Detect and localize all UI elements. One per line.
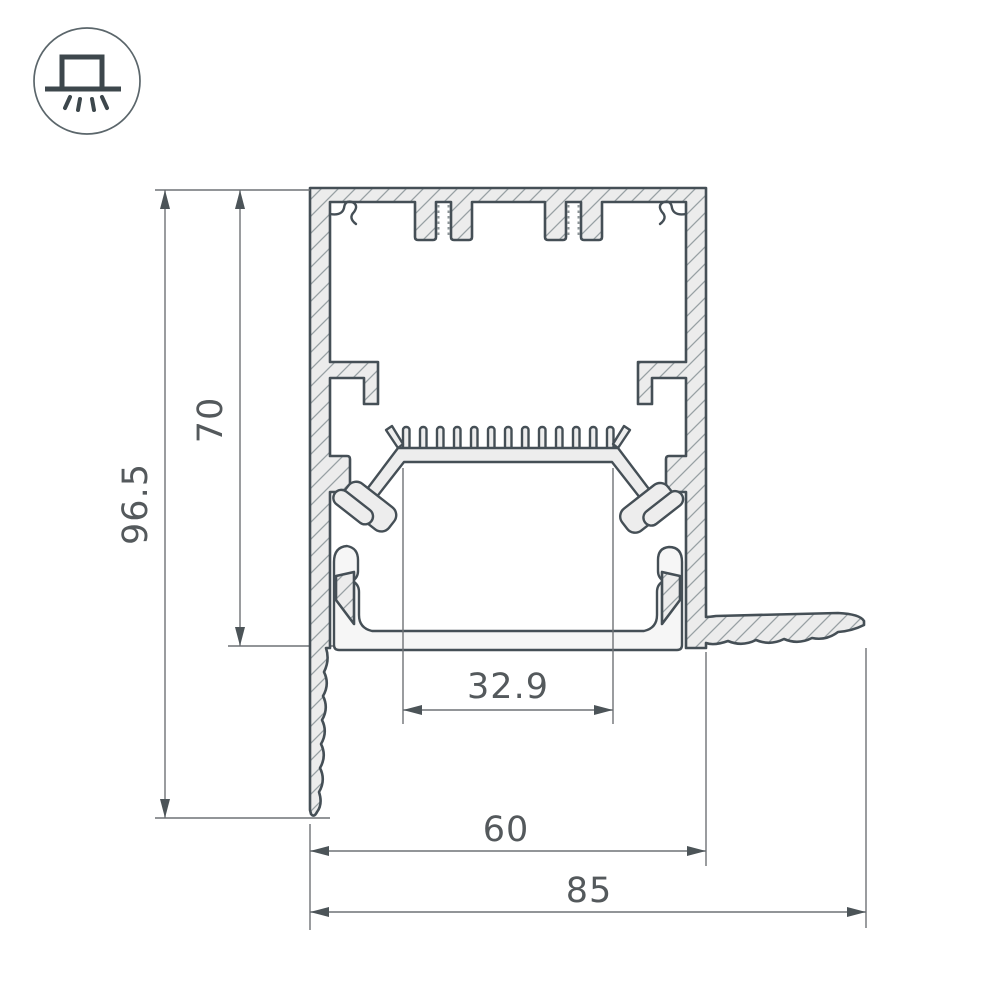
dimension-label-overall-width: 85 bbox=[566, 871, 613, 911]
heatsink-plate bbox=[352, 448, 664, 517]
icon-light-rays bbox=[65, 97, 107, 110]
corner-curl-right bbox=[660, 202, 686, 224]
profile-body-section bbox=[310, 188, 864, 816]
dimension-annotations: 96.5 70 32.9 60 bbox=[116, 190, 866, 930]
dimension-label-inner-height: 70 bbox=[191, 397, 231, 444]
surface-mounted-luminaire-icon bbox=[34, 28, 140, 134]
dimension-inner-height: 70 bbox=[191, 190, 245, 646]
corner-curl-left bbox=[330, 202, 356, 224]
dimension-inner-width: 32.9 bbox=[403, 667, 613, 715]
diffuser-tray bbox=[334, 546, 682, 650]
heatsink-end-fin-left bbox=[386, 426, 403, 448]
profile-drawing-canvas: 96.5 70 32.9 60 bbox=[0, 0, 1000, 1000]
heatsink-end-fin-right bbox=[613, 426, 630, 448]
drawing-page: 96.5 70 32.9 60 bbox=[0, 0, 1000, 1000]
heatsink-assembly bbox=[330, 426, 686, 540]
dimension-label-inner-width: 32.9 bbox=[467, 667, 549, 707]
dimension-label-body-width: 60 bbox=[483, 810, 530, 850]
dimension-label-overall-height: 96.5 bbox=[116, 463, 156, 545]
dimension-body-width: 60 bbox=[310, 810, 706, 856]
dimension-overall-height: 96.5 bbox=[116, 190, 170, 818]
icon-circle bbox=[34, 28, 140, 134]
dimension-overall-width: 85 bbox=[310, 871, 866, 917]
icon-luminaire-body bbox=[62, 57, 102, 89]
